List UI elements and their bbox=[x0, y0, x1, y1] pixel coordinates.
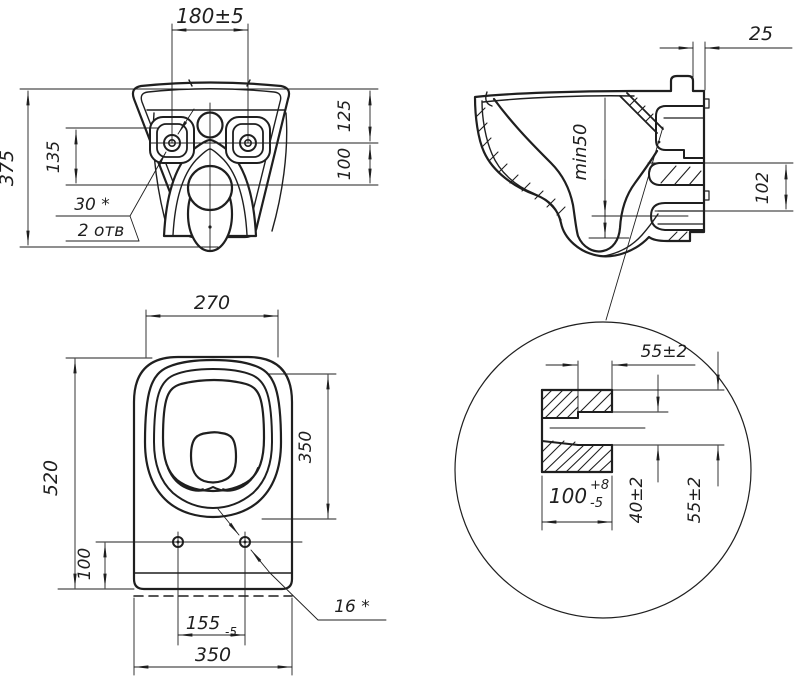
dim-hole-spacing-label: 180±5 bbox=[176, 4, 244, 28]
dim-bore-tolerance-lower-label: -5 bbox=[590, 496, 603, 511]
detail-point-mark bbox=[658, 141, 661, 144]
dim-bore-depth-label: 100 bbox=[549, 484, 587, 508]
dim-wall-gap-label: 25 bbox=[749, 23, 773, 45]
front-view: 180±5 375 135 125 100 30 * 2 отв bbox=[0, 4, 378, 251]
note-hole-diameter-label: 30 * bbox=[74, 195, 110, 215]
dim-bore-tolerance-upper-label: +8 bbox=[590, 478, 609, 493]
top-view: 270 520 350 100 155 -5 350 16 * bbox=[40, 292, 386, 675]
dim-water-seal-label: min50 bbox=[570, 124, 591, 181]
dim-hole-height-label: 135 bbox=[44, 141, 64, 173]
dim-overall-depth-label: 520 bbox=[40, 460, 62, 496]
drawing-sheet: 180±5 375 135 125 100 30 * 2 отв bbox=[0, 0, 800, 687]
dim-spigot-diameter-label: 55±2 bbox=[685, 477, 705, 524]
note-hole-count-label: 2 отв bbox=[78, 221, 125, 241]
dim-bowl-depth-label: 350 bbox=[296, 431, 316, 463]
side-body bbox=[475, 76, 709, 256]
dim-seat-width-label: 270 bbox=[194, 292, 230, 314]
dim-overall-height-label: 375 bbox=[0, 150, 18, 186]
dim-rim-to-holes-label: 125 bbox=[335, 100, 355, 132]
detail-circle-boundary bbox=[455, 322, 751, 618]
dim-hole-offset-label: 100 bbox=[75, 548, 95, 580]
detail-section-block bbox=[542, 390, 612, 472]
dim-hole-spacing-tolerance-label: -5 bbox=[225, 625, 237, 639]
technical-drawing-canvas: 180±5 375 135 125 100 30 * 2 отв bbox=[0, 0, 800, 687]
note-hole-diameter-label-top: 16 * bbox=[334, 597, 370, 617]
detail-view: 55±2 100 +8 -5 40±2 55±2 bbox=[455, 322, 751, 618]
top-view-body bbox=[134, 357, 292, 596]
dim-spigot-length-label: 55±2 bbox=[641, 342, 688, 362]
dim-outlet-height-label: 102 bbox=[753, 172, 773, 204]
dim-bore-diameter-label: 40±2 bbox=[627, 477, 647, 524]
top-body-outline bbox=[134, 357, 292, 589]
dim-hole-spacing-label-top: 155 bbox=[186, 613, 220, 634]
side-section-view: 25 min50 102 bbox=[475, 23, 793, 320]
dim-overall-width-label: 350 bbox=[195, 644, 231, 666]
front-view-body bbox=[133, 80, 289, 251]
dim-holes-to-outlet-label: 100 bbox=[335, 148, 355, 180]
